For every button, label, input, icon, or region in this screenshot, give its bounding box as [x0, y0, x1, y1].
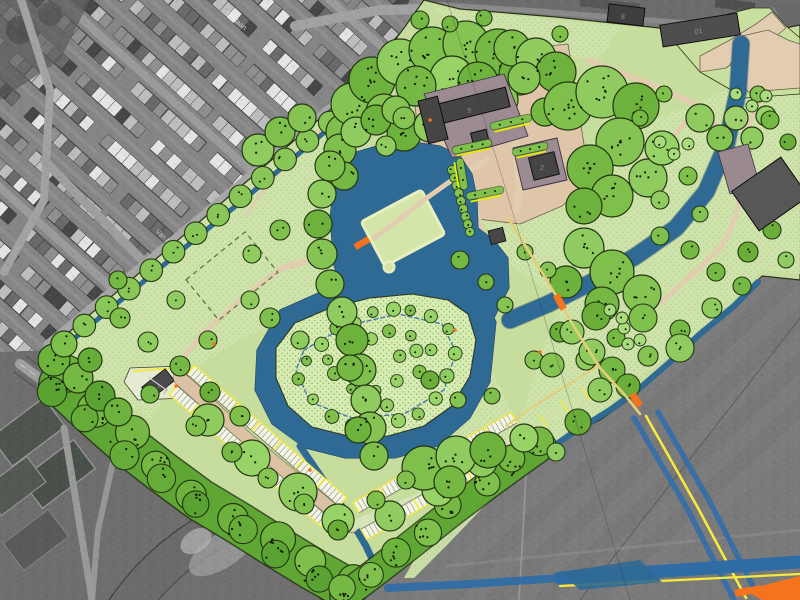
svg-text:8: 8 — [621, 14, 625, 21]
svg-text:01: 01 — [694, 28, 703, 36]
svg-text:2: 2 — [540, 165, 544, 172]
